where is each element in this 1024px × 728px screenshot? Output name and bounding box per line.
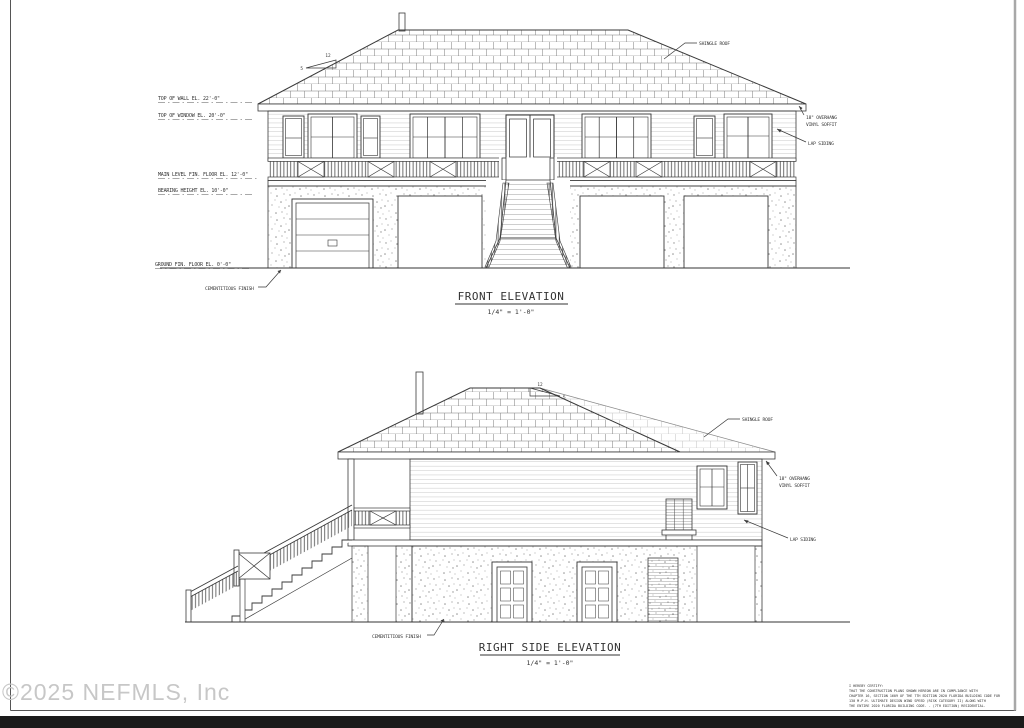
side-stair-balusters-lower: [190, 571, 238, 611]
side-pitch-run: 12: [537, 382, 543, 388]
side-pier-2: [396, 546, 412, 622]
front-garage-opening-far-right: [684, 196, 768, 268]
front-roof-vent-pipe: [399, 13, 405, 31]
label-ground-floor: GROUND FIN. FLOOR EL. 0'-0": [155, 262, 231, 268]
front-cementitious-label: CEMENTITIOUS FINISH: [205, 286, 254, 292]
front-garage-door: [292, 199, 373, 268]
front-elevation-title: FRONT ELEVATION: [458, 290, 565, 303]
side-lap-siding-label: LAP SIDING: [790, 537, 816, 543]
cert-line-3: CHAPTER 16, SECTION 1609 OF THE 7TH EDIT…: [849, 694, 1001, 698]
side-elevation-title: RIGHT SIDE ELEVATION: [479, 641, 621, 654]
front-window-3: [361, 116, 380, 158]
side-hvac-unit: [662, 499, 696, 540]
front-elevation-view: 12 5: [155, 13, 850, 316]
front-garage-opening-right: [580, 196, 664, 268]
side-pitch-rise: 5: [563, 395, 566, 401]
side-porch: [348, 459, 410, 540]
front-lap-siding-label: LAP SIDING: [808, 141, 834, 147]
side-eave-fascia: [338, 452, 775, 459]
front-window-7: [724, 114, 772, 161]
front-pitch-rise: 5: [300, 66, 303, 72]
side-louver-panel: [648, 558, 678, 622]
cert-line-5: THE ENTIRE 2020 FLORIDA BUILDING CODE. -…: [849, 704, 986, 708]
front-entry-stairs: [485, 180, 571, 268]
side-window-1: [697, 466, 727, 509]
front-overhang-label-1: 18" OVERHANG: [806, 115, 837, 121]
front-pitch-run: 12: [325, 53, 331, 59]
front-window-4: [410, 114, 480, 161]
side-pier-1: [352, 546, 368, 622]
side-door-1: [492, 562, 532, 622]
side-exterior-stairs: [186, 505, 352, 622]
label-bearing-height: BEARING HEIGHT EL. 10'-0": [158, 188, 228, 194]
front-window-1: [283, 116, 304, 158]
side-opening: [697, 546, 755, 622]
drawing-sheet: 12 5: [0, 0, 1024, 728]
side-floor-band: [348, 540, 762, 546]
label-top-of-wall: TOP OF WALL EL. 22'-0": [158, 96, 220, 102]
right-side-elevation-view: 12 5: [185, 372, 850, 667]
front-overhang-label-2: VINYL SOFFIT: [806, 122, 837, 128]
front-elevation-scale: 1/4" = 1'-0": [488, 308, 535, 316]
front-window-5: [582, 114, 651, 161]
side-shingle-roof-label: SHINGLE ROOF: [742, 417, 773, 423]
cert-line-2: THAT THE CONSTRUCTION PLANS SHOWN HEREON…: [849, 689, 978, 693]
certification-note: I HEREBY CERTIFY: THAT THE CONSTRUCTION …: [849, 684, 1001, 708]
bottom-bar: [0, 716, 1024, 728]
front-window-6: [694, 116, 715, 158]
side-cementitious-label: CEMENTITIOUS FINISH: [372, 634, 421, 640]
side-window-2: [738, 462, 757, 514]
label-top-of-window: TOP OF WINDOW EL. 20'-0": [158, 113, 226, 119]
front-eave-fascia: [258, 104, 806, 111]
side-overhang-label-2: VINYL SOFFIT: [779, 483, 810, 489]
front-window-2: [308, 114, 357, 161]
front-elevation-title-block: FRONT ELEVATION 1/4" = 1'-0": [455, 290, 568, 316]
side-door-2: [577, 562, 617, 622]
cert-line-1: I HEREBY CERTIFY:: [849, 684, 884, 688]
label-main-level: MAIN LEVEL FIN. FLOOR EL. 12'-0": [158, 172, 248, 178]
front-garage-opening-left: [398, 196, 482, 268]
side-stair-balusters-upper: [264, 510, 352, 574]
front-shingle-roof-label: SHINGLE ROOF: [699, 41, 730, 47]
side-porch-post: [348, 459, 354, 540]
front-porch-railing: [268, 158, 796, 181]
side-overhang-label-1: 18" OVERHANG: [779, 476, 810, 482]
side-elevation-scale: 1/4" = 1'-0": [527, 659, 574, 667]
cert-line-4: 130 M.P.H. ULTIMATE DESIGN WIND SPEED (R…: [849, 699, 986, 703]
elevation-drawing: 12 5: [0, 0, 1024, 728]
watermark: ©2025 NEFMLS, Inc: [2, 679, 230, 705]
front-dimension-labels: TOP OF WALL EL. 22'-0" TOP OF WINDOW EL.…: [155, 96, 258, 269]
side-elevation-title-block: RIGHT SIDE ELEVATION 1/4" = 1'-0": [479, 641, 621, 667]
side-roof-flue-pipe: [416, 372, 423, 414]
